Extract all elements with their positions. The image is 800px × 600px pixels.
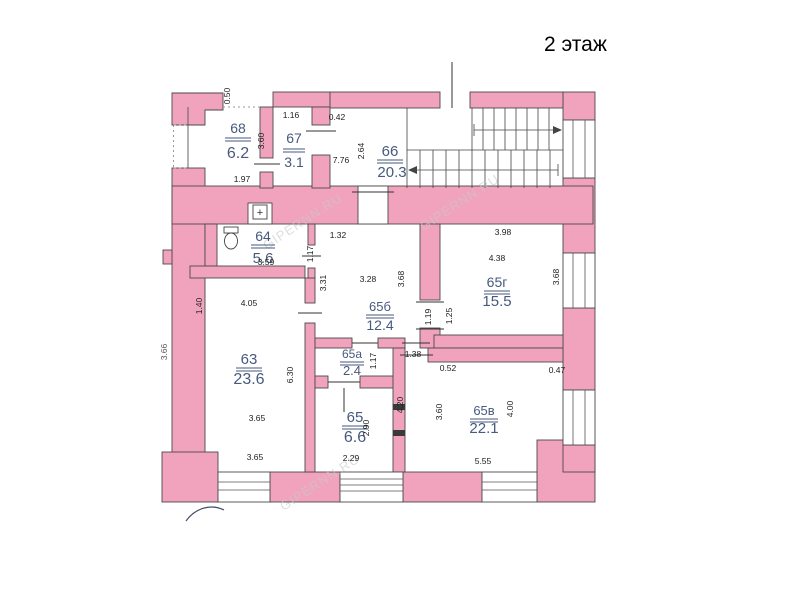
window-bottom-65v [482,472,537,502]
dim-r63-l: 1.40 [194,297,204,314]
room-67-number: 67 [286,130,302,146]
room-66-area: 20.3 [377,164,406,181]
room-65b-number: 65б [369,299,391,314]
wall-top-67 [273,92,330,107]
dim-r65v-hr: 4.00 [505,400,515,417]
wall-right-1 [563,92,595,120]
dim-r65v-s2: 0.47 [549,365,566,375]
dim-r64w: 3.59 [258,257,275,267]
window-right-66 [563,120,595,178]
room-64-number: 64 [255,228,271,244]
dim-r65-cor: 4.20 [395,396,405,413]
dim-r63w: 4.05 [241,298,258,308]
dim-r65v-w: 5.55 [475,456,492,466]
dim-r63h: 6.30 [285,366,295,383]
dim-r63-b1: 3.65 [249,413,266,423]
wall-63-right-b [305,323,315,472]
dim-r66w: 7.76 [333,155,350,165]
dim-r65v-s1: 0.52 [440,363,457,373]
dim-r65v-hl: 3.60 [434,403,444,420]
room-65b-area: 12.4 [366,317,393,333]
wall-64-right-a [308,224,315,245]
wall-65v-top [428,348,563,362]
room-65a-number: 65а [342,347,362,361]
floor-plan-svg: + GIPERNN.RU GIPERNN.RU GIPERNN.RU [0,0,800,600]
dim-r65a-d: 1.38 [405,349,422,359]
dim-r65-h: 2.90 [361,419,371,436]
wall-65g-bottom [434,335,563,348]
room-65v-number: 65в [473,403,494,418]
wall-68-67b [260,172,273,188]
room-65g-number: 65г [487,274,508,290]
window-right-65v [563,390,595,445]
room-63-number: 63 [241,351,258,368]
dim-r65b-w: 3.28 [360,274,377,284]
room-68-number: 68 [230,120,246,136]
wall-67-66b [312,155,330,188]
wall-65b-65g-a [420,224,440,300]
wall-top-66b [470,92,563,108]
frac-68 [225,138,251,141]
wall-right-4 [563,445,595,472]
dim-v050: 0.50 [222,87,232,104]
dim-r65b-h: 3.68 [396,270,406,287]
wall-65b-bottom-b [378,338,405,348]
stair-arrow-up-head [553,126,562,134]
dim-r67w: 1.16 [283,110,300,120]
dim-r65g-h: 3.68 [551,268,561,285]
wall-left-tick [163,250,172,264]
wall-65a-bottom-a [315,376,328,388]
wall-68-67a [260,107,273,158]
wall-64-bottom [190,266,305,278]
stair-arrow-down-head [408,166,417,174]
wall-top-66a [330,92,440,108]
window-bottom-63 [218,472,270,502]
toilet-bowl [225,233,238,249]
dim-r63-b2: 3.65 [247,452,264,462]
dim-r65b-d1: 1.19 [423,308,433,325]
wall-65a-bottom-b [360,376,395,388]
room-67-area: 3.1 [284,154,304,170]
dim-r65-w: 2.29 [343,453,360,463]
wall-64-left [205,224,217,266]
stair-treads-upper [472,108,549,150]
dim-r65g-w1: 3.98 [495,227,512,237]
dim-r65g-w2: 4.38 [489,253,506,263]
dim-r64-1: 1.32 [330,230,347,240]
dim-r65b-hl: 3.31 [318,274,328,291]
squiggle-mark [186,507,224,521]
room-68-area: 6.2 [227,145,249,162]
wall-top-left [172,93,223,125]
room-66-number: 66 [382,143,399,160]
dim-r68h: 3.60 [256,132,266,149]
dim-r65b-d2: 1.25 [444,307,454,324]
room-65a-area: 2.4 [343,363,361,378]
floor-title: 2 этаж [544,33,607,57]
wall-64-right-b [308,268,315,278]
duct-tick-2 [393,430,405,436]
room-63-area: 23.6 [233,371,264,388]
dim-r66h: 2.64 [356,142,366,159]
dim-outer-left: 3.66 [159,343,169,360]
wall-bottom-2 [403,472,482,502]
room-65g-area: 15.5 [482,293,511,310]
frac-66 [377,160,403,163]
window-right-65g [563,253,595,308]
stair-arrow-up-line [474,124,553,136]
vent-plus-icon: + [257,207,263,219]
room-65v-area: 22.1 [469,420,498,437]
wall-67-66a [312,107,330,125]
toilet-tank [224,227,238,233]
wall-right-3 [563,308,595,390]
floor-plan-page: 2 этаж [0,0,800,600]
wall-63-right-a [305,278,315,303]
frac-67 [283,149,305,152]
dim-r64-d: 1.17 [305,245,315,262]
dim-r65a-h: 1.17 [368,352,378,369]
wall-bottom-left-corner [162,452,218,502]
dim-r68w: 1.97 [234,174,251,184]
dim-r66a: 0.42 [329,112,346,122]
window-bottom-65 [340,472,403,502]
